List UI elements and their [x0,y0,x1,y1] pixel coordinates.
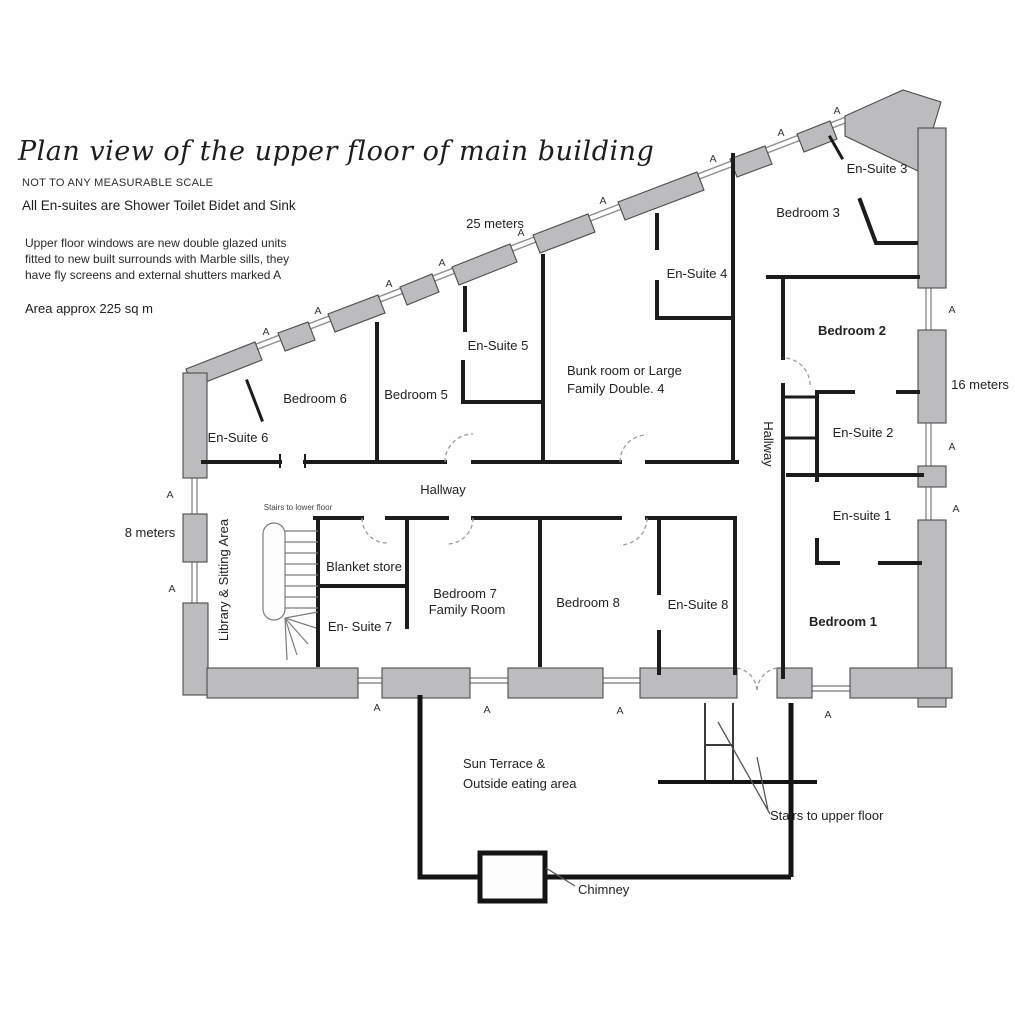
shutter-marker: A [166,489,173,501]
shutter-marker: A [262,326,269,338]
shutter-marker: A [833,105,840,117]
dimension-labels: 25 meters 16 meters 8 meters [125,216,1010,540]
shutter-marker: A [948,441,955,453]
dim-left: 8 meters [125,525,176,540]
floorplan-page: Plan view of the upper floor of main bui… [0,0,1015,1024]
room-labels: En-Suite 3 Bedroom 3 En-Suite 4 Bedroom … [208,161,908,897]
side-wall-glazing [192,288,931,691]
room-label-ensuite-2: En-Suite 2 [833,425,894,440]
room-label-blanket-store: Blanket store [326,559,402,574]
shutter-marker: A [385,278,392,290]
shutter-marker: A [599,195,606,207]
shutter-marker: A [373,702,380,714]
room-label-bedroom-3: Bedroom 3 [776,205,840,220]
room-label-bedroom-7-line2: Family Room [429,602,506,617]
room-label-hallway-right: Hallway [761,421,776,467]
room-label-ensuite-4: En-Suite 4 [667,266,728,281]
room-label-hallway-center: Hallway [420,482,466,497]
label-sun-terrace-line1: Sun Terrace & [463,756,545,771]
shutter-marker: A [824,709,831,721]
dim-top: 25 meters [466,216,524,231]
shutter-marker: A [948,304,955,316]
shutter-marker: A [616,705,623,717]
shutter-marker: A [952,503,959,515]
room-label-bedroom-2: Bedroom 2 [818,323,886,338]
chimney-box [480,853,545,901]
room-label-library: Library & Sitting Area [216,518,231,641]
label-chimney: Chimney [578,882,630,897]
door-arcs [362,358,810,692]
room-label-bedroom-1: Bedroom 1 [809,614,877,629]
room-label-ensuite-6: En-Suite 6 [208,430,269,445]
shutter-marker: A [314,305,321,317]
staircase [263,523,318,660]
floorplan-drawing: A A A A A A A A A A A A A A A A A A 25 m… [0,0,1015,1024]
shutter-marker: A [438,257,445,269]
room-label-bedroom-8: Bedroom 8 [556,595,620,610]
shutter-marker: A [168,583,175,595]
room-label-ensuite-5: En-Suite 5 [468,338,529,353]
label-stairs-upper: Stairs to upper floor [770,808,884,823]
leader-lines [546,722,770,886]
room-label-ensuite-7: En- Suite 7 [328,619,392,634]
label-sun-terrace-line2: Outside eating area [463,776,577,791]
shutter-marker: A [777,127,784,139]
room-label-ensuite-3: En-Suite 3 [847,161,908,176]
room-label-bunkroom-line1: Bunk room or Large [567,363,682,378]
room-label-ensuite-8: En-Suite 8 [668,597,729,612]
room-label-bedroom-6: Bedroom 6 [283,391,347,406]
room-label-bedroom-7-line1: Bedroom 7 [433,586,497,601]
room-label-stairs-lower: Stairs to lower floor [264,503,333,512]
room-label-bunkroom-line2: Family Double. 4 [567,381,665,396]
room-label-ensuite-1: En-suite 1 [833,508,892,523]
dim-right: 16 meters [951,377,1009,392]
shutter-marker: A [483,704,490,716]
shutter-marker: A [709,153,716,165]
room-label-bedroom-5: Bedroom 5 [384,387,448,402]
terrace-outline [420,695,791,901]
